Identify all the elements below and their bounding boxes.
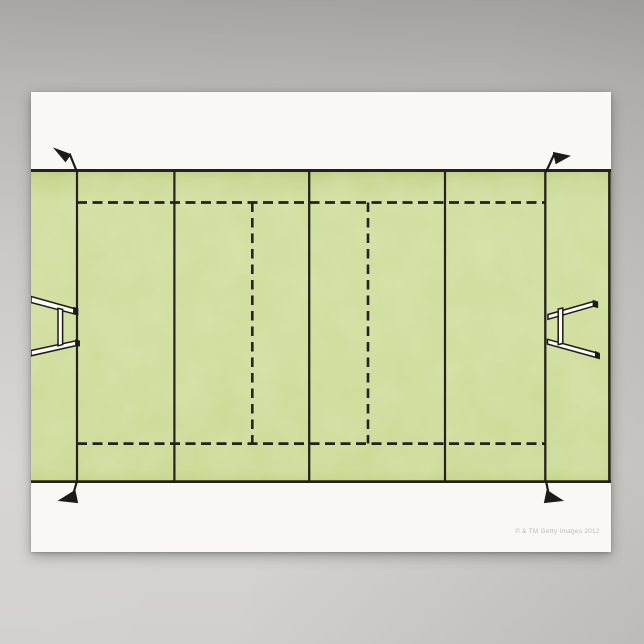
photo-background: © & TM Getty Images 2012 — [0, 0, 644, 644]
corner-flag-bottom-right — [545, 481, 563, 503]
corner-flag-bottom-left — [59, 481, 78, 503]
rugby-field-illustration — [31, 92, 611, 552]
corner-flag-top-left — [55, 149, 78, 173]
poster: © & TM Getty Images 2012 — [31, 92, 611, 552]
watermark-text: © & TM Getty Images 2012 — [515, 528, 600, 535]
grass-area — [31, 170, 611, 482]
